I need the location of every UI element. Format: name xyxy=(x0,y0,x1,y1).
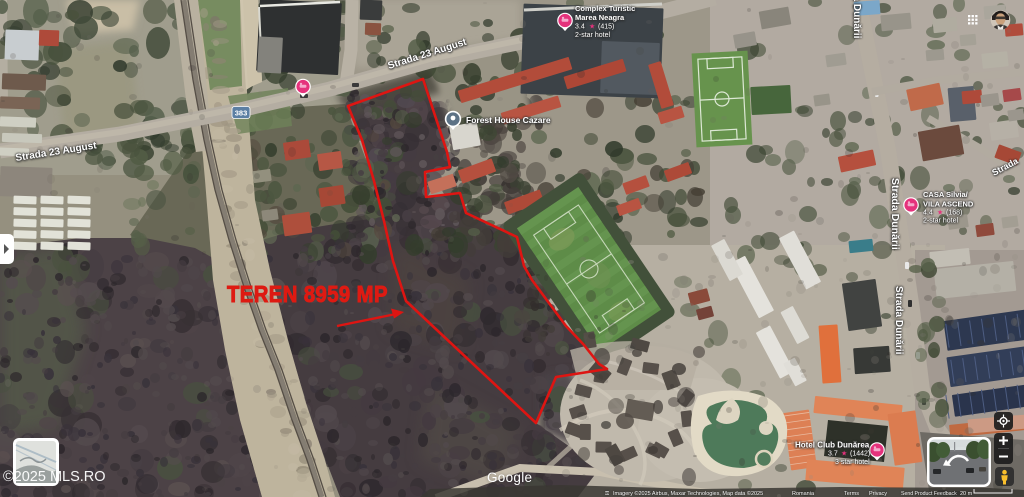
svg-text:Strada Dunării: Strada Dunării xyxy=(851,0,862,39)
svg-text:Strada Dunării: Strada Dunării xyxy=(893,286,904,355)
svg-text:★: ★ xyxy=(841,450,847,458)
svg-text:20 m: 20 m xyxy=(960,491,973,497)
svg-text:3 star hotel: 3 star hotel xyxy=(835,459,870,466)
svg-text:Imagery ©2025 Airbus, Maxar Te: Imagery ©2025 Airbus, Maxar Technologies… xyxy=(613,490,763,497)
svg-text:Google: Google xyxy=(487,470,532,485)
svg-text:Send Product Feedback: Send Product Feedback xyxy=(901,491,957,497)
svg-text:3.4: 3.4 xyxy=(575,24,585,31)
svg-text:Strada Dunării: Strada Dunării xyxy=(889,178,901,250)
svg-text:383: 383 xyxy=(235,109,248,118)
svg-text:Marea Neagra: Marea Neagra xyxy=(575,13,625,22)
svg-text:Terms: Terms xyxy=(844,491,859,497)
svg-text:(168): (168) xyxy=(946,210,962,217)
svg-text:VILA ASCEND: VILA ASCEND xyxy=(923,200,974,209)
svg-text:2-star hotel: 2-star hotel xyxy=(575,32,610,39)
svg-text:CASA Silvia/: CASA Silvia/ xyxy=(923,190,969,199)
svg-text:Complex Turistic: Complex Turistic xyxy=(575,4,635,13)
svg-text:⚿: ⚿ xyxy=(605,491,609,497)
svg-text:Forest House Cazare: Forest House Cazare xyxy=(466,115,551,125)
svg-text:Hotel Club Dunărea: Hotel Club Dunărea xyxy=(795,441,870,450)
svg-text:Privacy: Privacy xyxy=(869,491,887,497)
svg-text:©2025 MLS.RO: ©2025 MLS.RO xyxy=(3,469,106,485)
svg-text:Romania: Romania xyxy=(792,491,815,497)
svg-text:★: ★ xyxy=(589,23,595,31)
svg-text:2-star hotel: 2-star hotel xyxy=(923,218,958,225)
svg-text:3.7: 3.7 xyxy=(828,451,838,458)
svg-text:★: ★ xyxy=(937,209,943,217)
svg-text:4.4: 4.4 xyxy=(923,210,933,217)
svg-text:(415): (415) xyxy=(598,24,614,31)
svg-text:TEREN 8959 MP: TEREN 8959 MP xyxy=(227,281,388,308)
svg-text:(1442): (1442) xyxy=(850,451,870,458)
